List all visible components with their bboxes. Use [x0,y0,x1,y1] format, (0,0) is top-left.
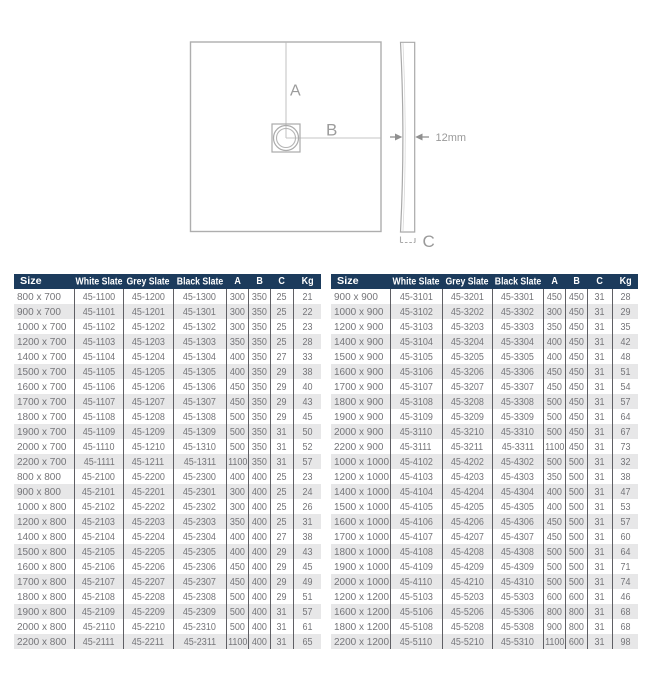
svg-text:12mm: 12mm [436,132,467,144]
svg-text:B: B [326,121,337,140]
svg-text:C: C [423,232,435,251]
svg-text:A: A [290,83,301,100]
